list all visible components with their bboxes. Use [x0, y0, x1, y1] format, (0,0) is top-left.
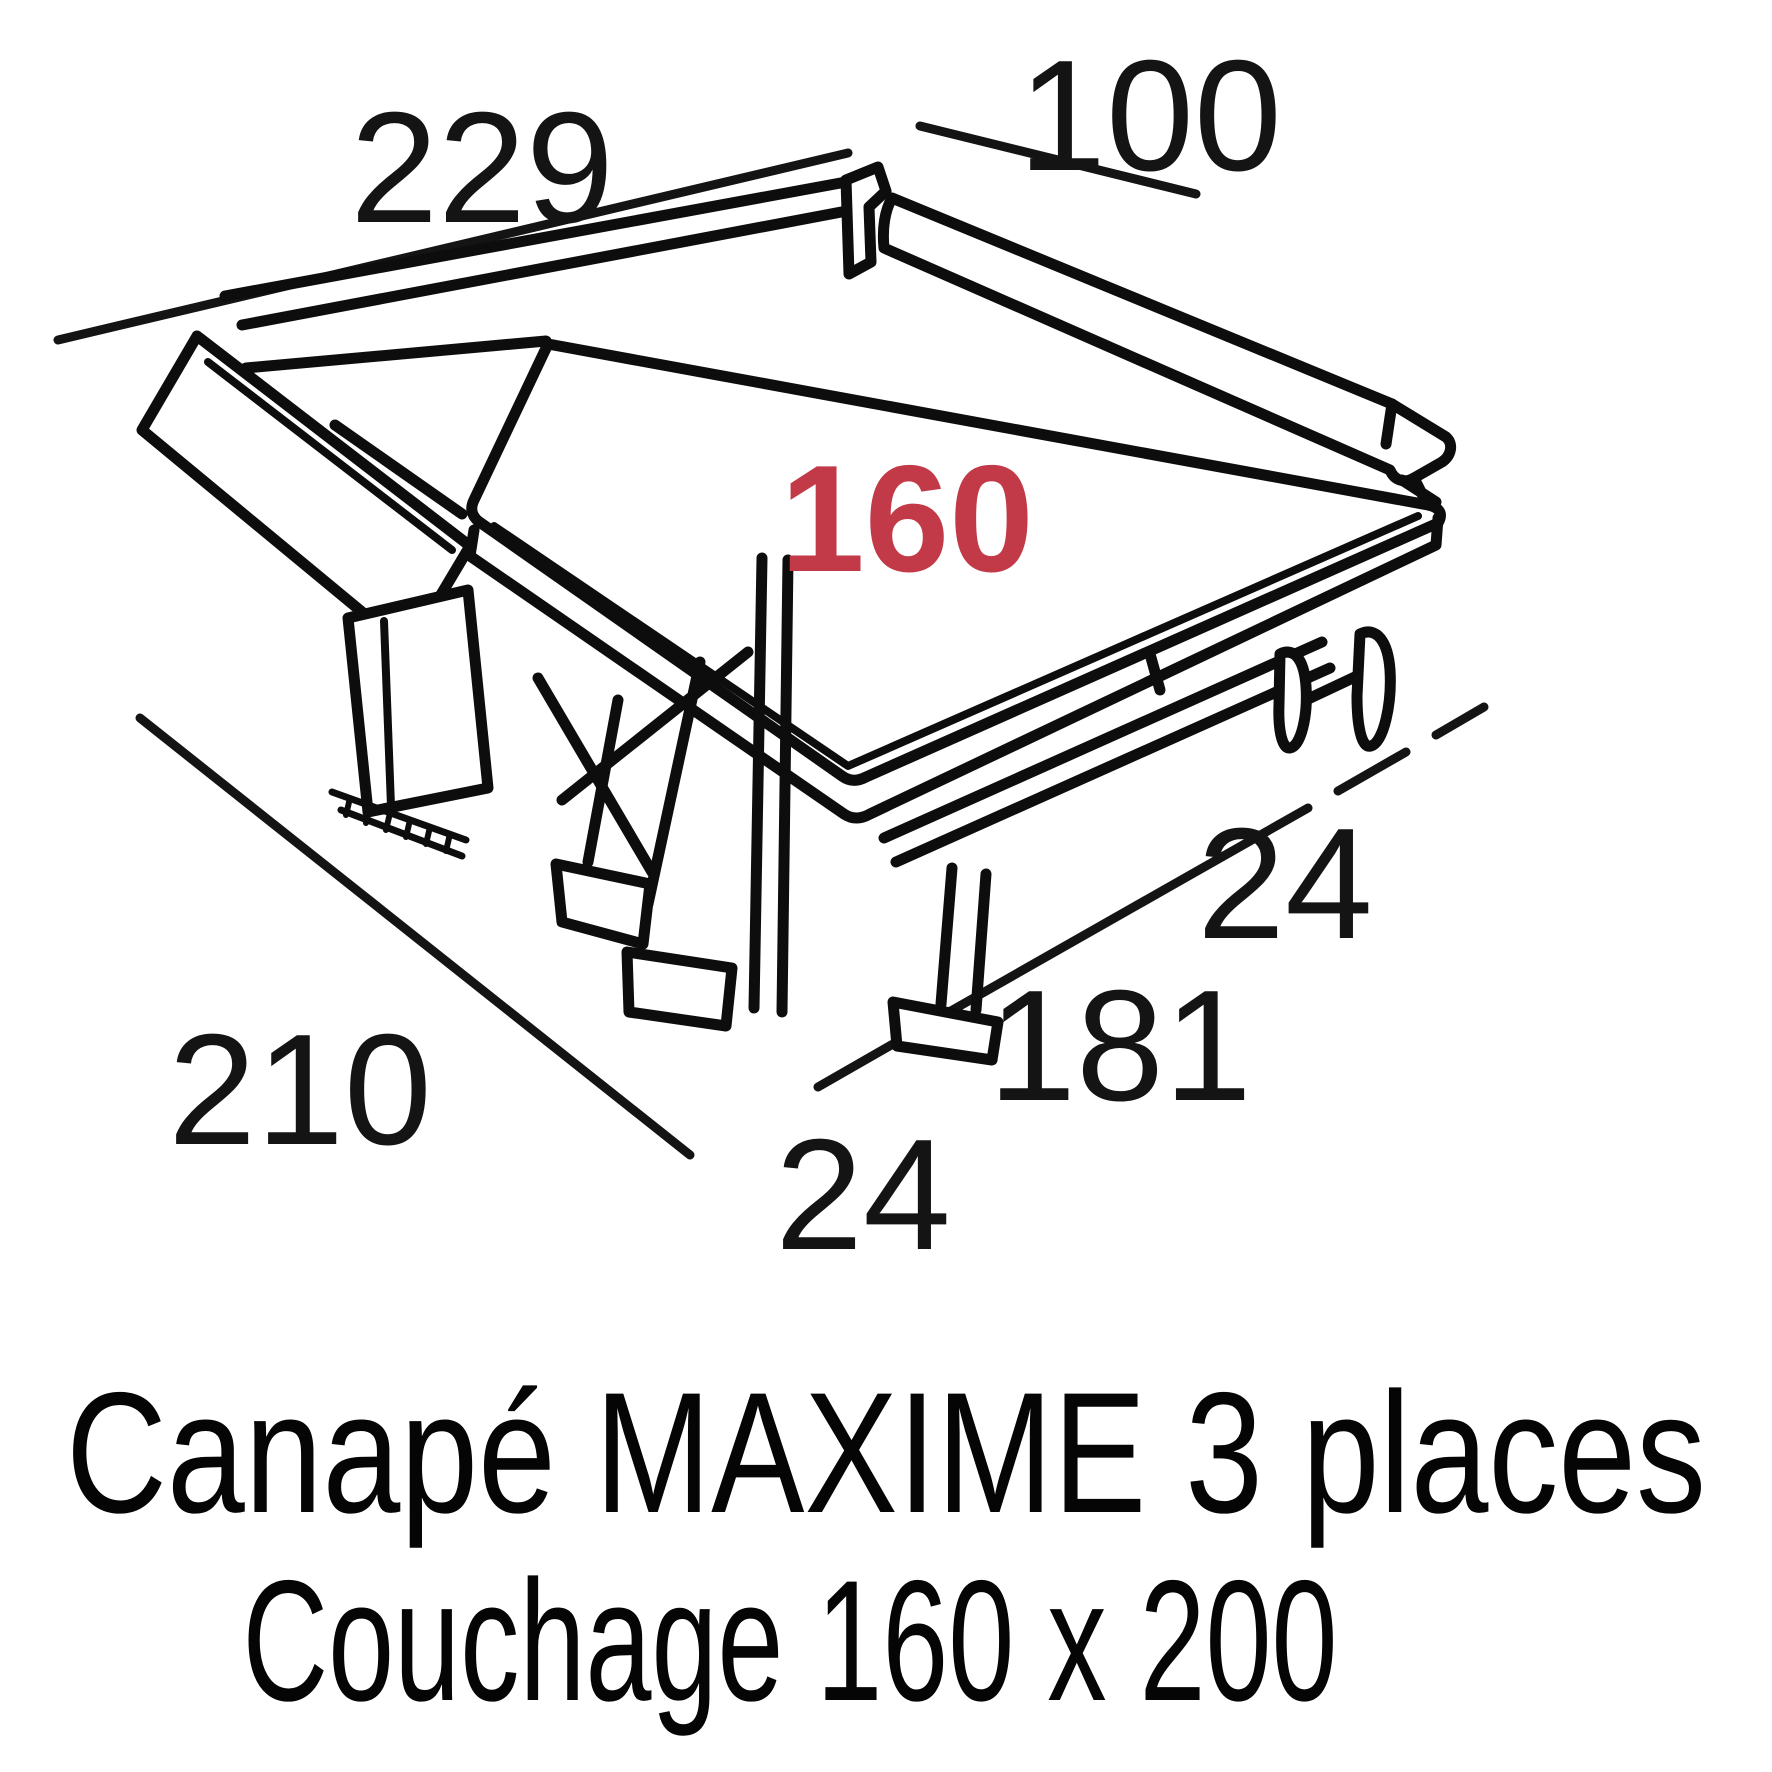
bed-leg-right-b	[1357, 632, 1390, 746]
dim-label-total-width: 229	[350, 80, 614, 256]
backrest-cushion-crease	[1386, 404, 1392, 444]
mechanism-foot-c	[893, 1002, 998, 1060]
mechanism-foot-a	[556, 864, 650, 944]
dim-label-mattress-width: 160	[780, 434, 1034, 604]
dim-label-side-offset: 24	[1197, 796, 1373, 972]
mechanism-rear-leg-a	[941, 868, 952, 1004]
support-box	[348, 590, 488, 812]
dim-line-front-offset	[818, 1040, 900, 1087]
dim-line-side-offset-a	[1338, 752, 1406, 791]
dim-label-front-offset: 24	[775, 1107, 951, 1283]
dim-label-bed-length: 181	[988, 958, 1252, 1134]
sofa-bed-dimension-diagram: 229 100 160 24 181 210 24 Canapé MAXIME …	[0, 0, 1772, 1772]
bed-leg-right-a	[1279, 652, 1306, 748]
dim-label-total-depth: 210	[168, 1002, 432, 1178]
caption-line-1: Canapé MAXIME 3 places	[66, 1357, 1706, 1549]
caption-line-2: Couchage 160 x 200	[243, 1545, 1338, 1737]
mechanism-foot-b	[627, 952, 732, 1026]
diagram-page: 229 100 160 24 181 210 24 Canapé MAXIME …	[0, 0, 1772, 1772]
dim-label-backrest-depth: 100	[1018, 28, 1282, 204]
mechanism-bar-b	[782, 560, 788, 1012]
dim-line-side-offset-b	[1436, 707, 1484, 735]
deck-back-edge	[246, 341, 546, 368]
